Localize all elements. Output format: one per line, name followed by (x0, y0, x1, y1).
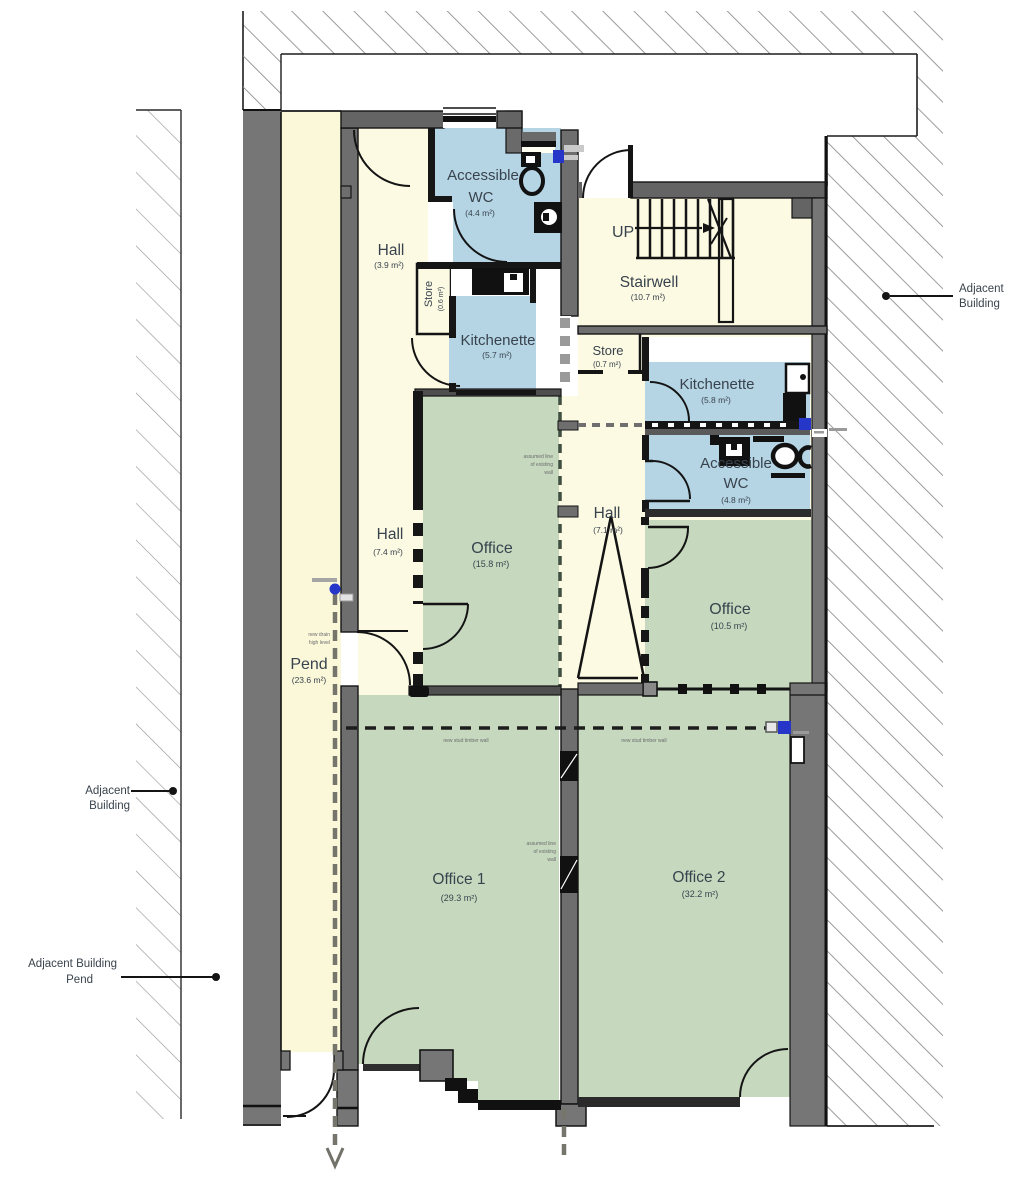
svg-text:Store: Store (592, 343, 623, 358)
svg-text:Office 2: Office 2 (672, 869, 725, 886)
svg-text:UP: UP (612, 224, 634, 241)
svg-text:of existing: of existing (533, 849, 556, 855)
svg-text:Office: Office (471, 540, 513, 557)
svg-text:Hall: Hall (594, 505, 621, 522)
svg-text:(5.7 m²): (5.7 m²) (482, 350, 512, 360)
svg-text:(0.7 m²): (0.7 m²) (593, 360, 621, 369)
svg-text:(29.3 m²): (29.3 m²) (441, 893, 478, 903)
svg-text:(7.1 m²): (7.1 m²) (593, 525, 623, 535)
svg-text:wall: wall (547, 857, 556, 863)
svg-text:(10.7 m²): (10.7 m²) (631, 292, 666, 302)
svg-text:WC: WC (724, 475, 749, 492)
svg-text:assumed line: assumed line (524, 454, 554, 460)
svg-text:Stairwell: Stairwell (620, 274, 679, 291)
svg-text:(23.6 m²): (23.6 m²) (292, 675, 327, 685)
svg-text:(4.8 m²): (4.8 m²) (721, 495, 751, 505)
svg-text:of existing: of existing (530, 462, 553, 468)
svg-text:Pend: Pend (66, 974, 93, 986)
svg-text:(10.5 m²): (10.5 m²) (711, 621, 748, 631)
svg-text:high level: high level (309, 640, 330, 646)
svg-text:Pend: Pend (290, 656, 327, 673)
svg-text:Office: Office (709, 601, 751, 618)
svg-text:Accessible: Accessible (700, 455, 772, 472)
svg-text:(3.9 m²): (3.9 m²) (374, 260, 404, 270)
svg-text:Building: Building (959, 298, 1000, 310)
svg-text:Store: Store (423, 281, 435, 307)
svg-text:Kitchenette: Kitchenette (679, 376, 754, 393)
svg-text:(7.4 m²): (7.4 m²) (373, 547, 403, 557)
svg-text:Office 1: Office 1 (432, 871, 485, 888)
svg-text:new stud timber wall: new stud timber wall (443, 738, 488, 744)
svg-text:Hall: Hall (377, 526, 404, 543)
svg-text:Kitchenette: Kitchenette (460, 332, 535, 349)
svg-text:(0.6 m²): (0.6 m²) (438, 287, 445, 312)
svg-text:wall: wall (544, 470, 553, 476)
svg-text:(4.4 m²): (4.4 m²) (465, 208, 495, 218)
svg-text:WC: WC (469, 189, 494, 206)
svg-text:Accessible: Accessible (447, 167, 519, 184)
svg-text:(32.2 m²): (32.2 m²) (682, 889, 719, 899)
svg-text:Adjacent Building: Adjacent Building (28, 958, 117, 970)
svg-text:new stud timber wall: new stud timber wall (621, 738, 666, 744)
svg-text:(15.8 m²): (15.8 m²) (473, 559, 510, 569)
svg-text:Adjacent: Adjacent (85, 785, 131, 797)
svg-text:new drain: new drain (308, 632, 330, 638)
svg-text:assumed line: assumed line (527, 841, 557, 847)
svg-text:(5.8 m²): (5.8 m²) (701, 395, 731, 405)
svg-text:Building: Building (89, 800, 130, 812)
svg-text:Hall: Hall (378, 242, 405, 259)
svg-text:Adjacent: Adjacent (959, 283, 1005, 295)
